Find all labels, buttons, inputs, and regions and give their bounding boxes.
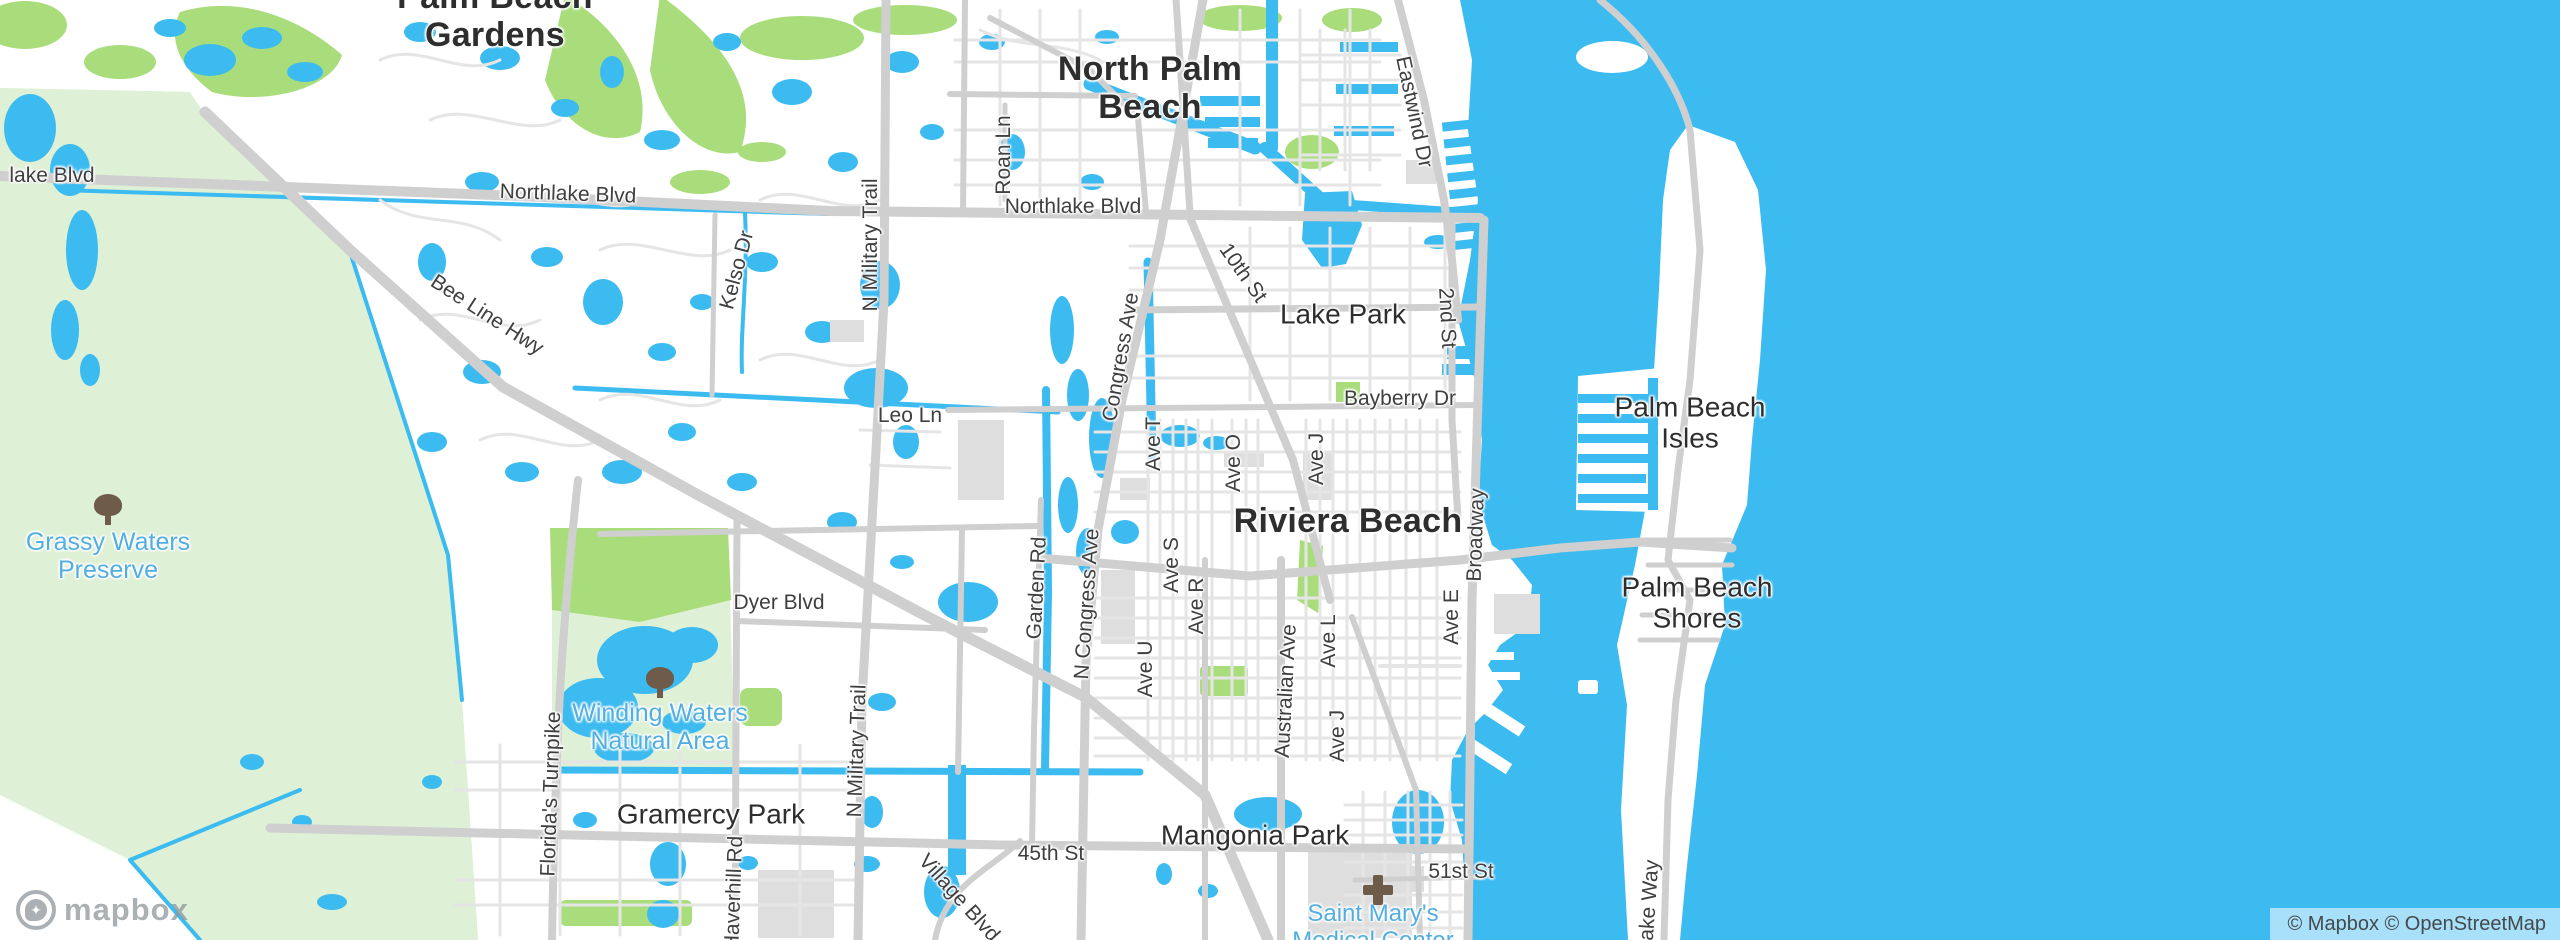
mapbox-logo[interactable]: ✦ mapbox	[16, 890, 189, 930]
tree-icon	[643, 667, 677, 701]
attribution-text: © Mapbox © OpenStreetMap	[2288, 913, 2547, 936]
tree-icon	[91, 494, 125, 528]
map-canvas[interactable]	[0, 0, 2560, 940]
map-viewport[interactable]: Palm Beach GardensNorth Palm BeachRivier…	[0, 0, 2560, 940]
map-attribution[interactable]: © Mapbox © OpenStreetMap	[2270, 908, 2560, 940]
mapbox-wordmark: mapbox	[64, 892, 189, 928]
hospital-icon	[1363, 875, 1393, 905]
mapbox-pin-icon: ✦	[16, 890, 56, 930]
